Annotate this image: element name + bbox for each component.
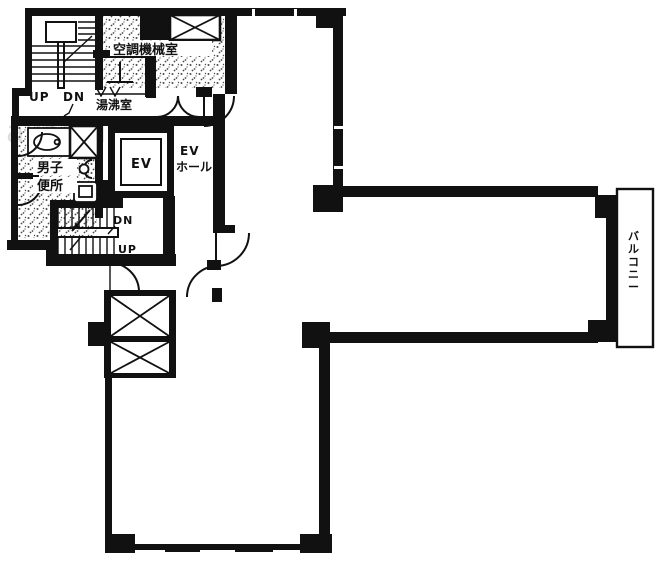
joint-mark	[334, 126, 343, 129]
joint-mark	[334, 166, 343, 169]
joint-mark	[294, 9, 297, 16]
wall-segment	[319, 344, 330, 544]
joint-mark	[252, 9, 255, 16]
wall-segment	[212, 288, 222, 302]
wall-segment	[46, 254, 176, 266]
stipple-region	[103, 15, 143, 43]
mens-toilet-label-1: 男子	[37, 161, 63, 176]
wall-segment	[163, 196, 175, 266]
wall-segment	[25, 8, 32, 92]
window-mark	[235, 549, 273, 552]
sink-drain	[55, 140, 60, 145]
balcony-label: バルコニー	[628, 230, 639, 294]
duct-shaft	[170, 15, 220, 40]
machine-room-label: 空調機械室	[113, 42, 178, 58]
wall-segment	[7, 240, 50, 250]
ev-hall-label-2: ホール	[176, 160, 212, 174]
wall-segment	[213, 94, 225, 228]
column	[300, 534, 332, 553]
wall-segment	[225, 8, 237, 94]
wall-segment	[95, 8, 103, 90]
wall-segment	[108, 544, 332, 550]
wall-segment	[213, 225, 235, 233]
wall-segment	[196, 87, 212, 97]
floor-plan-canvas: akeoffice	[0, 0, 662, 563]
column	[313, 185, 343, 212]
balcony: バルコニー	[617, 189, 653, 347]
wall-segment	[330, 332, 598, 343]
toilet-shaft	[70, 126, 98, 158]
up-label: UP	[29, 90, 50, 104]
urinal-drain	[80, 165, 89, 174]
wall-segment	[11, 116, 18, 248]
hot-water-room-label: 湯沸室	[96, 97, 132, 112]
mens-toilet-label-2: 便所	[37, 178, 63, 194]
wall-segment	[340, 186, 598, 197]
wall-segment	[333, 10, 343, 190]
wall-segment	[11, 116, 105, 126]
elevator-label: EV	[131, 157, 152, 172]
ev-hall-label-1: EV	[180, 144, 199, 158]
toilet-bowl	[79, 186, 92, 197]
dn-label: DN	[63, 90, 85, 104]
column	[316, 8, 343, 28]
wall-segment	[140, 11, 172, 40]
mid-shaft-block	[111, 296, 169, 373]
dn-label: DN	[113, 214, 133, 227]
floor-plan-page: akeoffice	[0, 0, 662, 563]
window-mark	[165, 549, 200, 552]
wall-segment	[88, 322, 106, 346]
up-label: UP	[118, 243, 137, 256]
wall-segment	[606, 197, 617, 332]
